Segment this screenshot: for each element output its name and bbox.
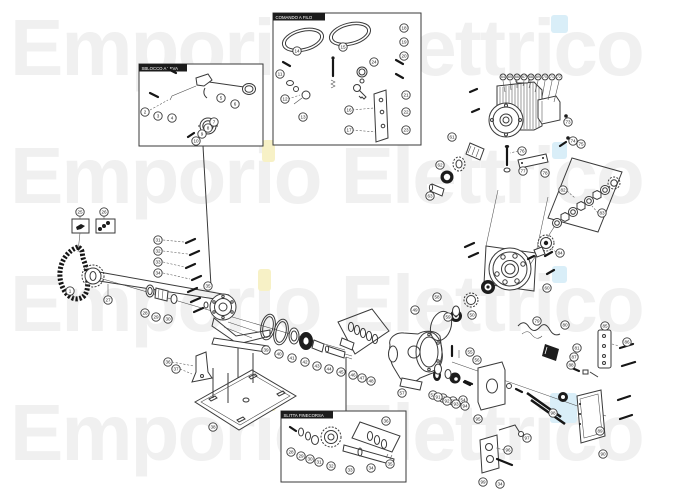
svg-text:93: 93 <box>453 402 459 407</box>
part-number-balloon: 31 <box>315 458 323 466</box>
part-number-balloon: 11 <box>276 70 284 78</box>
part-number-balloon: 27 <box>104 296 112 304</box>
part-number-balloon: 39 <box>262 346 270 354</box>
part-number-balloon: 9 <box>198 130 206 138</box>
part-number-balloon: 30 <box>164 315 172 323</box>
part-number-balloon: 29 <box>297 452 305 460</box>
part-number-balloon: 58 <box>433 293 441 301</box>
svg-text:99: 99 <box>480 480 486 485</box>
part-number-balloon: 24 <box>370 58 378 66</box>
svg-text:68: 68 <box>529 75 533 79</box>
part-number-balloon: 62 <box>436 161 444 169</box>
svg-text:37: 37 <box>173 367 179 372</box>
svg-text:12: 12 <box>282 97 288 102</box>
svg-text:47: 47 <box>359 376 365 381</box>
part-number-balloon: 32 <box>154 247 162 255</box>
svg-text:66: 66 <box>515 75 519 79</box>
part-number-balloon: 67 <box>521 74 527 80</box>
part-number-balloon: 55 <box>466 348 474 356</box>
part-number-balloon: 3 <box>154 112 162 120</box>
part-number-balloon: 65 <box>507 74 513 80</box>
part-number-balloon: 60 <box>543 284 551 292</box>
part-number-balloon: 92 <box>443 397 451 405</box>
svg-text:11: 11 <box>278 72 283 77</box>
svg-text:21: 21 <box>403 93 409 98</box>
part-number-balloon: 46 <box>349 371 357 379</box>
bracket-screws <box>163 239 201 280</box>
leader-line <box>203 146 211 286</box>
svg-text:50: 50 <box>469 313 475 318</box>
svg-text:29: 29 <box>153 315 159 320</box>
svg-text:59: 59 <box>445 315 451 320</box>
svg-text:19: 19 <box>401 40 407 45</box>
svg-text:71: 71 <box>550 75 554 79</box>
svg-text:82: 82 <box>560 188 566 193</box>
part-number-balloon: 23 <box>402 126 410 134</box>
svg-text:39: 39 <box>263 348 269 353</box>
part-number-balloon: 84 <box>556 249 564 257</box>
part-number-balloon: 28 <box>141 309 149 317</box>
svg-text:28: 28 <box>142 311 148 316</box>
svg-text:98: 98 <box>550 411 556 416</box>
svg-text:79: 79 <box>534 319 540 324</box>
part-number-balloon: 12 <box>281 95 289 103</box>
svg-text:70: 70 <box>543 75 547 79</box>
part-number-balloon: 36 <box>164 358 172 366</box>
svg-text:35: 35 <box>387 462 393 467</box>
part-number-balloon: 13 <box>299 113 307 121</box>
part-number-balloon: 4 <box>168 114 176 122</box>
svg-text:95: 95 <box>475 417 481 422</box>
svg-text:28: 28 <box>288 450 294 455</box>
part-number-balloon: 95 <box>474 415 482 423</box>
svg-text:34: 34 <box>155 271 161 276</box>
part-number-balloon: 69 <box>535 74 541 80</box>
part-number-balloon: 91 <box>434 393 442 401</box>
svg-text:2: 2 <box>144 110 147 115</box>
svg-text:81: 81 <box>574 346 580 351</box>
svg-text:48: 48 <box>368 379 374 384</box>
exploded-parts-diagram: Emporio Elettrico Emporio Elettrico Empo… <box>0 0 694 500</box>
input-shaft-part <box>429 143 484 196</box>
svg-text:89: 89 <box>597 429 603 434</box>
svg-text:44: 44 <box>326 367 332 372</box>
svg-text:36: 36 <box>383 419 389 424</box>
part-number-balloon: 49 <box>411 306 419 314</box>
part-number-balloon: 25 <box>76 208 84 216</box>
svg-text:83: 83 <box>599 211 605 216</box>
svg-text:88: 88 <box>568 363 574 368</box>
svg-text:94: 94 <box>462 404 468 409</box>
part-number-balloon: 42 <box>301 358 309 366</box>
part-number-balloon: 1 <box>66 287 74 295</box>
svg-text:63: 63 <box>427 194 433 199</box>
ring-panel-part <box>338 309 389 354</box>
svg-text:15: 15 <box>340 45 346 50</box>
limit-plate-part <box>598 330 635 368</box>
svg-text:20: 20 <box>401 54 407 59</box>
part-number-balloon: 15 <box>339 43 347 51</box>
part-number-balloon: 72 <box>556 74 562 80</box>
svg-text:26: 26 <box>101 210 107 215</box>
svg-text:30: 30 <box>165 317 171 322</box>
svg-text:78: 78 <box>542 171 548 176</box>
part-number-balloon: 28 <box>287 448 295 456</box>
part-number-balloon: 98 <box>549 409 557 417</box>
part-number-balloon: 88 <box>567 361 575 369</box>
svg-text:29: 29 <box>298 454 304 459</box>
part-number-balloon: 96 <box>504 446 512 454</box>
part-number-balloon: 93 <box>452 400 460 408</box>
part-number-balloon: 5 <box>217 94 225 102</box>
svg-text:9: 9 <box>201 132 204 137</box>
part-number-balloon: 33 <box>346 466 354 474</box>
part-number-balloon: 90 <box>599 450 607 458</box>
nut-ring-panel-part <box>548 142 622 232</box>
svg-text:84: 84 <box>557 251 563 256</box>
svg-text:7: 7 <box>213 120 216 125</box>
knurled-knob-part <box>528 235 556 259</box>
svg-text:41: 41 <box>289 356 295 361</box>
part-number-balloon: 37 <box>172 365 180 373</box>
svg-text:77: 77 <box>520 169 526 174</box>
part-number-balloon: 47 <box>358 374 366 382</box>
part-number-balloon: 45 <box>337 368 345 376</box>
svg-text:33: 33 <box>155 260 161 265</box>
part-number-balloon: 79 <box>533 317 541 325</box>
part-number-balloon: 33 <box>154 258 162 266</box>
svg-text:18: 18 <box>401 26 407 31</box>
part-number-balloon: 6 <box>231 100 239 108</box>
svg-text:69: 69 <box>536 75 540 79</box>
svg-text:61: 61 <box>449 135 455 140</box>
part-number-balloon: 50 <box>468 311 476 319</box>
svg-text:58: 58 <box>434 295 440 300</box>
svg-text:64: 64 <box>501 75 505 79</box>
svg-text:24: 24 <box>371 60 377 65</box>
svg-text:33: 33 <box>347 468 353 473</box>
svg-text:97: 97 <box>524 436 530 441</box>
svg-text:34: 34 <box>368 466 374 471</box>
part-number-balloon: 20 <box>400 52 408 60</box>
svg-text:96: 96 <box>505 448 511 453</box>
svg-text:62: 62 <box>437 163 443 168</box>
svg-text:17: 17 <box>346 128 352 133</box>
part-number-balloon: 57 <box>398 389 406 397</box>
part-number-balloon: 17 <box>345 126 353 134</box>
part-number-balloon: 86 <box>623 338 631 346</box>
svg-text:22: 22 <box>403 110 409 115</box>
svg-text:46: 46 <box>350 373 356 378</box>
part-number-balloon: 82 <box>559 186 567 194</box>
svg-text:3: 3 <box>157 114 160 119</box>
svg-text:76: 76 <box>519 149 525 154</box>
svg-text:55: 55 <box>467 350 473 355</box>
part-number-balloon: 70 <box>542 74 548 80</box>
part-number-balloon: 32 <box>327 462 335 470</box>
svg-text:31: 31 <box>316 460 322 465</box>
svg-text:6: 6 <box>234 102 237 107</box>
part-number-balloon: 61 <box>448 133 456 141</box>
svg-text:38: 38 <box>210 425 216 430</box>
capacitor-wires-part <box>518 323 560 361</box>
svg-text:1: 1 <box>69 289 72 294</box>
svg-text:5: 5 <box>220 96 223 101</box>
inset-box-cable-release-label: COMANDO A FILO <box>276 15 313 20</box>
svg-text:75: 75 <box>578 142 584 147</box>
part-number-balloon: 36 <box>382 417 390 425</box>
svg-text:4: 4 <box>171 116 174 121</box>
part-number-balloon: 19 <box>400 38 408 46</box>
svg-text:36: 36 <box>165 360 171 365</box>
part-number-balloon: 85 <box>601 322 609 330</box>
svg-text:8: 8 <box>207 126 210 131</box>
gasket-bearing-row <box>258 313 352 359</box>
part-number-balloon: 35 <box>386 460 394 468</box>
svg-text:80: 80 <box>562 323 568 328</box>
part-number-balloon: 81 <box>573 344 581 352</box>
svg-text:42: 42 <box>302 360 308 365</box>
svg-text:32: 32 <box>328 464 334 469</box>
part-number-balloon: 56 <box>473 356 481 364</box>
svg-text:43: 43 <box>314 364 320 369</box>
part-number-balloon: 10 <box>192 137 200 145</box>
part-number-balloon: 34 <box>496 480 504 488</box>
part-number-balloon: 16 <box>345 106 353 114</box>
part-number-balloon: 31 <box>154 236 162 244</box>
svg-text:60: 60 <box>544 286 550 291</box>
svg-text:35: 35 <box>205 284 211 289</box>
part-number-balloon: 97 <box>523 434 531 442</box>
part-number-balloon: 74 <box>569 137 577 145</box>
part-number-balloon: 77 <box>519 167 527 175</box>
svg-text:32: 32 <box>155 249 161 254</box>
svg-text:92: 92 <box>444 399 450 404</box>
svg-text:16: 16 <box>346 108 352 113</box>
part-number-balloon: 68 <box>528 74 534 80</box>
part-number-balloon: 14 <box>293 47 301 55</box>
svg-text:67: 67 <box>522 75 526 79</box>
part-number-balloon: 80 <box>561 321 569 329</box>
part-number-balloon: 48 <box>367 377 375 385</box>
svg-text:25: 25 <box>77 210 83 215</box>
svg-text:72: 72 <box>557 75 561 79</box>
microswitch-assembly <box>435 362 566 473</box>
part-number-balloon: 44 <box>325 365 333 373</box>
part-number-balloon: 18 <box>400 24 408 32</box>
svg-text:57: 57 <box>399 391 405 396</box>
svg-text:91: 91 <box>435 395 441 400</box>
svg-text:74: 74 <box>570 139 576 144</box>
svg-text:90: 90 <box>600 452 606 457</box>
part-number-balloon: 89 <box>596 427 604 435</box>
cover-box-part <box>577 390 632 443</box>
inset-box-release-lever-label: SBLOCCO A LEVA <box>142 66 179 71</box>
svg-text:73: 73 <box>565 120 571 125</box>
part-number-balloon: 2 <box>141 108 149 116</box>
part-number-balloon: 29 <box>152 313 160 321</box>
svg-text:23: 23 <box>403 128 409 133</box>
svg-text:30: 30 <box>307 457 313 462</box>
electric-motor-part <box>470 76 570 140</box>
part-number-balloon: 94 <box>461 402 469 410</box>
svg-text:31: 31 <box>155 238 161 243</box>
part-number-balloon: 83 <box>598 209 606 217</box>
part-number-balloon: 66 <box>514 74 520 80</box>
svg-text:34: 34 <box>497 482 503 487</box>
part-number-balloon: 43 <box>313 362 321 370</box>
svg-text:13: 13 <box>300 115 306 120</box>
part-number-balloon: 71 <box>549 74 555 80</box>
part-number-balloon: 22 <box>402 108 410 116</box>
part-number-balloon: 78 <box>541 169 549 177</box>
part-number-balloon: 75 <box>577 140 585 148</box>
inset-box-limit-switch-label: SLITTA FINECORSA <box>284 413 324 418</box>
svg-text:45: 45 <box>338 370 344 375</box>
svg-text:49: 49 <box>412 308 418 313</box>
svg-text:10: 10 <box>193 139 199 144</box>
part-number-balloon: 59 <box>444 313 452 321</box>
part-number-balloon: 38 <box>209 423 217 431</box>
inset-box-cable-release: COMANDO A FILO <box>273 13 421 145</box>
part-number-balloon: 40 <box>275 350 283 358</box>
svg-text:14: 14 <box>294 49 300 54</box>
part-number-balloon: 34 <box>154 269 162 277</box>
part-number-balloon: 21 <box>402 91 410 99</box>
svg-text:87: 87 <box>571 355 577 360</box>
pedestal-bracket-part <box>188 288 270 352</box>
part-number-balloon: 73 <box>564 118 572 126</box>
boxed-fastener-parts <box>72 216 115 252</box>
part-number-balloon: 35 <box>204 282 212 290</box>
part-number-balloon: 99 <box>479 478 487 486</box>
part-number-balloon: 41 <box>288 354 296 362</box>
svg-text:27: 27 <box>105 298 111 303</box>
part-number-balloon: 64 <box>500 74 506 80</box>
svg-text:86: 86 <box>624 340 630 345</box>
part-number-balloon: 34 <box>367 464 375 472</box>
svg-text:40: 40 <box>276 352 282 357</box>
part-number-balloon: 63 <box>426 192 434 200</box>
svg-text:56: 56 <box>474 358 480 363</box>
part-number-balloon: 30 <box>306 455 314 463</box>
part-number-balloon: 26 <box>100 208 108 216</box>
svg-text:65: 65 <box>508 75 512 79</box>
mounting-plate-part <box>374 90 388 142</box>
svg-text:85: 85 <box>602 324 608 329</box>
part-number-balloon: 76 <box>518 147 526 155</box>
part-number-balloon: 87 <box>570 353 578 361</box>
